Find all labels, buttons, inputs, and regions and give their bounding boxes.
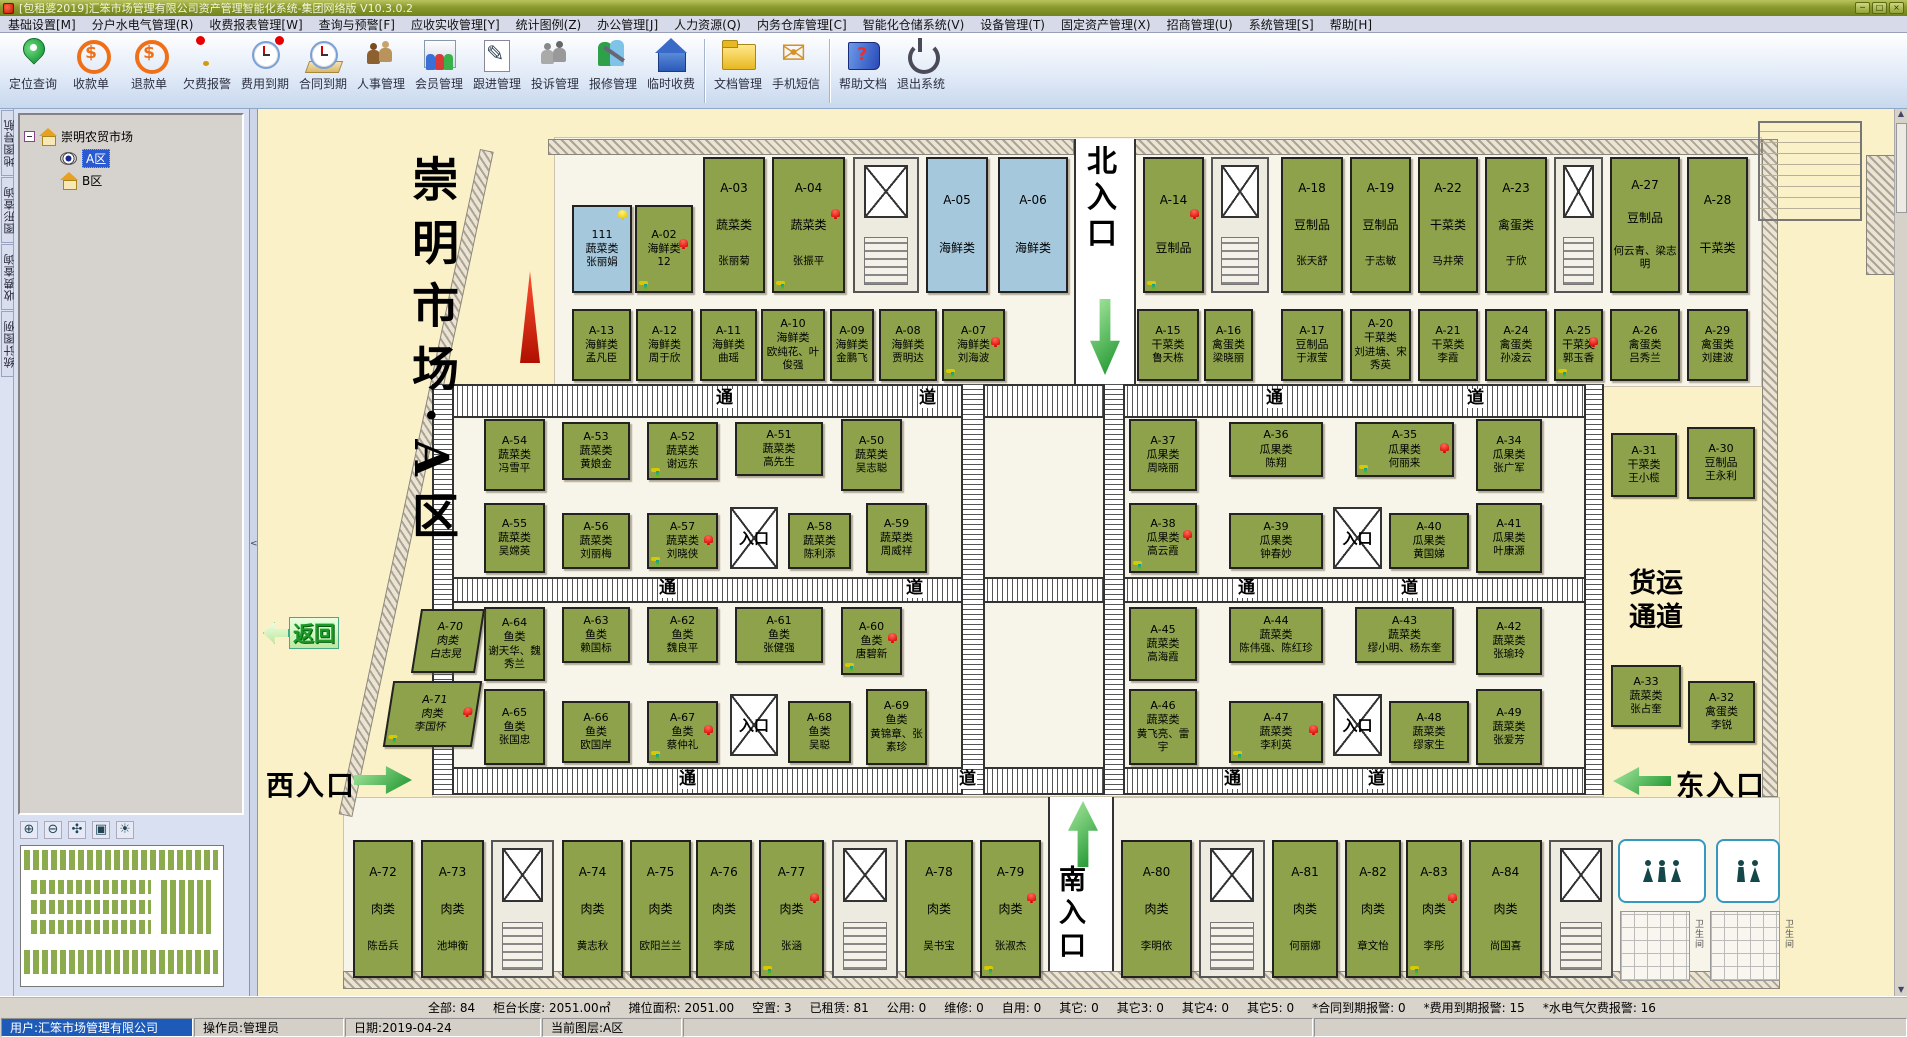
water-tap-icon [639, 281, 650, 290]
menu-item-1[interactable]: 分户水电气管理(R) [84, 16, 202, 33]
inner-entrance-box: 入口 [1333, 694, 1382, 756]
帮助文档-button[interactable]: 帮助文档 [834, 36, 892, 92]
fee-alarm-bell-icon [704, 535, 713, 543]
floor-plan-canvas[interactable]: 崇明市场·A区 北入口 南入口 西入口 东入口 返回 货运 通道 [258, 109, 1907, 996]
stall-A-08[interactable]: A-08海鲜类贾明达 [879, 309, 937, 381]
west-entrance: 西入口 [266, 764, 356, 804]
stall-A-25[interactable]: A-25干菜类郭玉香 [1554, 309, 1603, 381]
status-spare-2 [1314, 1018, 1907, 1037]
stall-A-26[interactable]: A-26禽蛋类吕秀兰 [1610, 309, 1680, 381]
stall-A-35[interactable]: A-35瓜果类何丽来 [1355, 422, 1454, 477]
refund-icon [130, 36, 168, 74]
status-user: 用户:汇笨市场管理有限公司 [1, 1018, 193, 1037]
wall-right [1762, 139, 1778, 797]
water-tap-icon [946, 369, 957, 378]
help-icon [844, 36, 882, 74]
tree-area-a-label[interactable]: A区 [82, 149, 110, 168]
status-item-12: *合同到期报警: 0 [1312, 999, 1406, 1016]
stall-A-22[interactable]: A-22干菜类马井荣 [1418, 157, 1478, 293]
status-item-6: 维修: 0 [944, 999, 984, 1016]
receipt-icon [72, 36, 110, 74]
stall-A-51[interactable]: A-51蔬菜类高先生 [735, 422, 823, 476]
corridor-v-right [1584, 384, 1604, 795]
water-tap-icon [1133, 561, 1144, 570]
status-item-7: 自用: 0 [1002, 999, 1042, 1016]
stall-A-10[interactable]: A-10海鲜类欧纯花、叶俊强 [761, 309, 825, 381]
pan-icon[interactable]: ✣ [68, 821, 86, 839]
water-tap-icon [1558, 369, 1569, 378]
contract-due-icon [304, 36, 342, 74]
fee-alarm-bell-icon [1183, 530, 1192, 538]
stall-A-43[interactable]: A-43蔬菜类缪小明、杨东奎 [1355, 607, 1454, 663]
stall-A-41[interactable]: A-41瓜果类叶康源 [1476, 503, 1542, 573]
status-item-5: 公用: 0 [887, 999, 927, 1016]
stall-A-61[interactable]: A-61鱼类张健强 [735, 607, 823, 663]
menu-item-0[interactable]: 基础设置[M] [0, 16, 84, 33]
fee-alarm-bell-icon [704, 725, 713, 733]
menu-item-13[interactable]: 系统管理[S] [1241, 16, 1322, 33]
fee-alarm-bell-icon [810, 893, 819, 901]
stall-A-47[interactable]: A-47蔬菜类李利英 [1229, 701, 1323, 763]
sidebar-tab-0[interactable]: 地图导航 [1, 110, 14, 176]
status-item-11: 其它5: 0 [1247, 999, 1294, 1016]
menu-item-12[interactable]: 招商管理(U) [1159, 16, 1241, 33]
map-nav-tools: ⊕ ⊖ ✣ ▣ ☀ [20, 821, 134, 839]
water-tap-icon [387, 735, 399, 744]
followup-icon [478, 36, 516, 74]
stall-A-60[interactable]: A-60鱼类唐碧新 [841, 607, 902, 675]
zoom-out-icon[interactable]: ⊖ [44, 821, 62, 839]
corridor-h3 [432, 767, 1604, 795]
south-entrance-corridor: 南入口 [1048, 797, 1114, 971]
fee-alarm-bell-icon [1589, 337, 1598, 345]
menu-item-11[interactable]: 固定资产管理(X) [1053, 16, 1159, 33]
stall-A-38[interactable]: A-38瓜果类高云霞 [1129, 503, 1197, 573]
stall-A-83[interactable]: A-83肉类李彤 [1406, 840, 1462, 978]
stair-elevator-shaft [832, 840, 898, 978]
fee-alarm-bell-icon [888, 633, 897, 641]
water-tap-icon [651, 468, 662, 477]
stall-A-54[interactable]: A-54蔬菜类冯雪平 [484, 419, 545, 491]
报修管理-button[interactable]: 报修管理 [584, 36, 642, 92]
stall-A-53[interactable]: A-53蔬菜类黄娘金 [562, 422, 630, 480]
stall-A-77[interactable]: A-77肉类张涵 [759, 840, 824, 978]
stall-A-34[interactable]: A-34瓜果类张广军 [1476, 419, 1542, 491]
status-item-9: 其它3: 0 [1117, 999, 1164, 1016]
stall-A-76[interactable]: A-76肉类李成 [696, 840, 752, 978]
documents-icon [719, 36, 757, 74]
inner-entrance-box: 入口 [1333, 507, 1382, 569]
fee-alarm-bell-icon [1309, 725, 1318, 733]
east-entrance: 东入口 [1676, 764, 1766, 804]
status-item-8: 其它: 0 [1059, 999, 1099, 1016]
water-tap-icon [1147, 281, 1158, 290]
wall-top-left [548, 139, 1074, 155]
corridor-char: 道 [905, 579, 924, 598]
status-item-2: 摊位面积: 2051.00 [629, 999, 734, 1016]
warn-bell-icon [618, 210, 627, 218]
手机短信-button[interactable]: 手机短信 [767, 36, 825, 92]
status-bar: 全部: 84柜台长度: 2051.00㎡摊位面积: 2051.00空置: 3已租… [0, 996, 1907, 1017]
sidebar-splitter[interactable]: < [250, 109, 258, 996]
stall-A-37[interactable]: A-37瓜果类周晓丽 [1129, 419, 1197, 491]
tree-node-market[interactable]: 崇明农贸市场 [24, 125, 238, 147]
status-item-13: *费用到期报警: 15 [1424, 999, 1525, 1016]
minimize-button[interactable]: ─ [1855, 2, 1870, 14]
收款单-button[interactable]: 收款单 [62, 36, 120, 92]
water-tap-icon [651, 751, 662, 760]
stall-A-13[interactable]: A-13海鲜类孟凡臣 [572, 309, 631, 381]
restroom-female-icon [1618, 839, 1706, 903]
stall-A-55[interactable]: A-55蔬菜类吴嫦英 [484, 503, 545, 573]
map-vertical-scrollbar[interactable]: ▲▼ [1894, 109, 1907, 996]
menu-item-2[interactable]: 收费报表管理[W] [201, 16, 310, 33]
stall-A-18[interactable]: A-18豆制品张天舒 [1281, 157, 1343, 293]
stall-A-64[interactable]: A-64鱼类谢天华、魏秀兰 [484, 607, 545, 681]
east-arrow-icon [1613, 767, 1671, 795]
stall-A-29[interactable]: A-29禽蛋类刘建波 [1687, 309, 1748, 381]
人事管理-button[interactable]: 人事管理 [352, 36, 410, 92]
corridor-v-mid-left [961, 384, 985, 795]
corridor-char: 通 [678, 770, 697, 789]
restroom-label: 卫生间 [1692, 919, 1705, 949]
stall-A-39[interactable]: A-39瓜果类钟春妙 [1229, 513, 1323, 569]
fee-alarm-bell-icon [1448, 893, 1457, 901]
zoom-in-icon[interactable]: ⊕ [20, 821, 38, 839]
stall-A-12[interactable]: A-12海鲜类周于欣 [636, 309, 693, 381]
menu-item-5[interactable]: 统计图例(Z) [508, 16, 590, 33]
stall-A-27[interactable]: A-27豆制品何云青、梁志明 [1610, 157, 1680, 293]
back-button[interactable]: 返回 [263, 617, 339, 649]
corridor-h1 [432, 384, 1604, 418]
complaints-icon [536, 36, 574, 74]
stair-elevator-shaft [1211, 157, 1269, 293]
stall-A-82[interactable]: A-82肉类章文怡 [1345, 840, 1401, 978]
stall-A-75[interactable]: A-75肉类欧阳兰兰 [630, 840, 691, 978]
stall-A-73[interactable]: A-73肉类池坤衡 [421, 840, 484, 978]
stall-A-48[interactable]: A-48蔬菜类缪家生 [1389, 701, 1469, 763]
repair-icon [594, 36, 632, 74]
exit-icon [902, 36, 940, 74]
文档管理-button[interactable]: 文档管理 [709, 36, 767, 92]
corridor-char: 道 [1367, 770, 1386, 789]
wall-top-right [1134, 139, 1762, 155]
app-icon [3, 3, 14, 14]
会员管理-button[interactable]: 会员管理 [410, 36, 468, 92]
toolbar-separator [704, 39, 705, 103]
tree-area-b-label[interactable]: B区 [82, 172, 102, 189]
close-button[interactable]: × [1889, 2, 1904, 14]
stall-A-42[interactable]: A-42蔬菜类张瑜玲 [1476, 607, 1542, 675]
stall-A-19[interactable]: A-19豆制品于志敏 [1350, 157, 1411, 293]
stall-A-67[interactable]: A-67鱼类蔡仲礼 [647, 701, 718, 763]
corridor-char: 道 [958, 770, 977, 789]
stall-A-07[interactable]: A-07海鲜类刘海波 [942, 309, 1005, 381]
corridor-char: 通 [658, 579, 677, 598]
corridor-char: 通 [1237, 579, 1256, 598]
fee-alarm-bell-icon [679, 239, 688, 247]
fit-view-icon[interactable]: ▣ [92, 821, 110, 839]
status-item-10: 其它4: 0 [1182, 999, 1229, 1016]
status-date: 日期:2019-04-24 [345, 1018, 541, 1037]
locate-icon [14, 36, 52, 74]
跟进管理-button[interactable]: 跟进管理 [468, 36, 526, 92]
back-button-label[interactable]: 返回 [289, 617, 339, 649]
water-tap-icon [776, 281, 787, 290]
stall-A-36[interactable]: A-36瓜果类陈翔 [1229, 422, 1323, 477]
north-entrance-label: 北入口 [1076, 145, 1120, 253]
menu-item-10[interactable]: 设备管理(T) [972, 16, 1053, 33]
tree-expander-icon[interactable] [24, 131, 35, 142]
east-entrance-label: 东入口 [1676, 769, 1766, 802]
stall-A-32[interactable]: A-32禽蛋类李锐 [1688, 681, 1755, 743]
stall-A-17[interactable]: A-17豆制品于淑莹 [1281, 309, 1343, 381]
fee-alarm-bell-icon [831, 209, 840, 217]
corridor-char: 道 [1466, 389, 1485, 408]
stall-A-06[interactable]: A-06海鲜类 [998, 157, 1068, 293]
sidebar-tab-strip: 地图导航图形查询收费查询统计图例 [0, 109, 14, 996]
hr-icon [362, 36, 400, 74]
outer-structure [1758, 121, 1862, 221]
stall-A-24[interactable]: A-24禽蛋类孙凌云 [1485, 309, 1547, 381]
sms-icon [777, 36, 815, 74]
members-icon [420, 36, 458, 74]
menu-item-9[interactable]: 智能化仓储系统(V) [855, 16, 973, 33]
arrears-alarm-icon [188, 36, 226, 74]
inner-entrance-box: 入口 [730, 507, 778, 569]
stall-A-81[interactable]: A-81肉类何丽娜 [1272, 840, 1338, 978]
tree-root-label[interactable]: 崇明农贸市场 [61, 128, 133, 145]
stall-A-02[interactable]: A-02海鲜类12 [635, 205, 693, 293]
stall-A-70[interactable]: A-70肉类白志晃 [411, 609, 485, 673]
stall-A-63[interactable]: A-63鱼类赖国标 [562, 607, 630, 663]
stall-A-33[interactable]: A-33蔬菜类张占奎 [1611, 665, 1681, 727]
menu-bar: 基础设置[M]分户水电气管理(R)收费报表管理[W]查询与预警[F]应收实收管理… [0, 16, 1907, 33]
west-entrance-label: 西入口 [266, 769, 356, 802]
water-tap-icon [1410, 966, 1421, 975]
status-operator: 操作员:管理员 [194, 1018, 344, 1037]
stall-A-15[interactable]: A-15干菜类鲁天栋 [1137, 309, 1199, 381]
stall-A-78[interactable]: A-78肉类吴书宝 [905, 840, 973, 978]
corridor-char: 通 [1223, 770, 1242, 789]
sidebar-tab-1[interactable]: 图形查询 [1, 177, 14, 243]
stall-A-72[interactable]: A-72肉类陈岳兵 [353, 840, 413, 978]
south-arrow-icon [1068, 801, 1098, 867]
费用到期-button[interactable]: 费用到期 [236, 36, 294, 92]
stall-A-59[interactable]: A-59蔬菜类周威祥 [866, 503, 927, 573]
west-arrow-icon [354, 766, 412, 794]
bottom-status-bar: 用户:汇笨市场管理有限公司 操作员:管理员 日期:2019-04-24 当前图层… [0, 1017, 1907, 1038]
stall-A-65[interactable]: A-65鱼类张国忠 [484, 689, 545, 765]
maximize-button[interactable]: □ [1872, 2, 1887, 14]
stall-A-58[interactable]: A-58蔬菜类陈利添 [788, 513, 851, 569]
stair-elevator-shaft [853, 157, 919, 293]
合同到期-button[interactable]: 合同到期 [294, 36, 352, 92]
menu-item-8[interactable]: 内务仓库管理[C] [749, 16, 855, 33]
stall-A-45[interactable]: A-45蔬菜类高海霞 [1129, 607, 1197, 681]
stall-111[interactable]: 111蔬菜类张丽娟 [572, 205, 632, 293]
water-tap-icon [763, 966, 774, 975]
corridor-char: 通 [1265, 389, 1284, 408]
stall-A-03[interactable]: A-03蔬菜类张丽菊 [703, 157, 765, 293]
fee-alarm-bell-icon [991, 337, 1000, 345]
toolbar-separator [829, 39, 830, 103]
fee-alarm-bell-icon [1440, 443, 1449, 451]
menu-item-7[interactable]: 人力资源(Q) [666, 16, 749, 33]
temp-fee-icon [652, 36, 690, 74]
stair-elevator-shaft [1554, 157, 1603, 293]
sidebar-tab-2[interactable]: 收费查询 [1, 244, 14, 310]
back-arrow-icon [263, 622, 289, 644]
fee-alarm-bell-icon [1190, 209, 1199, 217]
stall-A-80[interactable]: A-80肉类李明依 [1121, 840, 1192, 978]
area-b-home-icon [60, 173, 77, 188]
stall-A-05[interactable]: A-05海鲜类 [926, 157, 988, 293]
corridor-v-mid-right [1103, 384, 1125, 795]
restrooms: 卫生间 卫生间 [1618, 835, 1782, 987]
corridor-char: 道 [918, 389, 937, 408]
stall-A-31[interactable]: A-31干菜类王小榄 [1611, 433, 1677, 497]
stall-A-46[interactable]: A-46蔬菜类黄飞亮、雷宇 [1129, 689, 1197, 765]
stall-A-56[interactable]: A-56蔬菜类刘丽梅 [562, 513, 630, 569]
stall-A-20[interactable]: A-20干菜类刘进塘、宋秀英 [1350, 309, 1411, 381]
status-layer: 当前图层:A区 [542, 1018, 682, 1037]
退款单-button[interactable]: 退款单 [120, 36, 178, 92]
alert-flag-marker [520, 271, 540, 363]
restroom-fixtures [1620, 911, 1690, 981]
stall-A-57[interactable]: A-57蔬菜类刘晓侠 [647, 513, 718, 569]
water-tap-icon [1233, 751, 1244, 760]
stall-A-28[interactable]: A-28干菜类 [1687, 157, 1748, 293]
stall-A-62[interactable]: A-62鱼类魏良平 [647, 607, 718, 663]
south-entrance-label: 南入口 [1050, 865, 1089, 964]
fee-due-icon [246, 36, 284, 74]
freight-corridor-label: 货运 通道 [1618, 567, 1694, 635]
stair-elevator-shaft [1199, 840, 1265, 978]
sidebar-tab-3[interactable]: 统计图例 [1, 311, 14, 377]
stall-A-11[interactable]: A-11海鲜类曲瑶 [700, 309, 757, 381]
status-item-14: *水电气欠费报警: 16 [1543, 999, 1656, 1016]
corridor-char: 道 [1400, 579, 1419, 598]
tree-node-area-a[interactable]: A区 [24, 147, 238, 169]
tree-node-area-b[interactable]: B区 [24, 169, 238, 191]
stair-elevator-shaft [1549, 840, 1613, 978]
stall-A-16[interactable]: A-16禽蛋类梁晓丽 [1204, 309, 1253, 381]
stall-A-21[interactable]: A-21干菜类李霞 [1418, 309, 1478, 381]
restroom-label-2: 卫生间 [1782, 919, 1795, 949]
退出系统-button[interactable]: 退出系统 [892, 36, 950, 92]
inner-entrance-box: 入口 [730, 694, 778, 756]
menu-item-14[interactable]: 帮助[H] [1322, 16, 1380, 33]
stall-A-49[interactable]: A-49蔬菜类张爱芳 [1476, 689, 1542, 765]
stall-A-66[interactable]: A-66鱼类欧国岸 [562, 701, 630, 763]
lightbulb-icon[interactable]: ☀ [116, 821, 134, 839]
map-area-title: 崇明市场·A区 [396, 155, 465, 555]
stall-A-52[interactable]: A-52蔬菜类谢远东 [647, 422, 718, 480]
status-item-4: 已租赁: 81 [810, 999, 869, 1016]
stall-A-09[interactable]: A-09海鲜类金鹏飞 [830, 309, 874, 381]
stall-A-79[interactable]: A-79肉类张淑杰 [980, 840, 1041, 978]
status-item-1: 柜台长度: 2051.00㎡ [493, 999, 610, 1016]
corridor-char: 通 [715, 389, 734, 408]
status-spare-1 [683, 1018, 1313, 1037]
overview-minimap[interactable] [20, 845, 224, 987]
market-home-icon [39, 129, 56, 144]
app-window: [包租婆2019]汇笨市场管理有限公司资产管理智能化系统-集团网络版 V10.3… [0, 0, 1907, 1038]
toolbar: 定位查询收款单退款单欠费报警费用到期合同到期人事管理会员管理跟进管理投诉管理报修… [0, 33, 1907, 109]
water-tap-icon [1359, 465, 1370, 474]
stall-A-44[interactable]: A-44蔬菜类陈伟强、陈红珍 [1229, 607, 1323, 663]
stall-A-04[interactable]: A-04蔬菜类张振平 [772, 157, 845, 293]
stall-A-84[interactable]: A-84肉类尚国喜 [1469, 840, 1542, 978]
market-tree: 崇明农贸市场 A区 B区 [18, 113, 244, 815]
投诉管理-button[interactable]: 投诉管理 [526, 36, 584, 92]
menu-item-6[interactable]: 办公管理[J] [589, 16, 666, 33]
stall-A-74[interactable]: A-74肉类黄志秋 [562, 840, 623, 978]
water-tap-icon [651, 557, 662, 566]
欠费报警-button[interactable]: 欠费报警 [178, 36, 236, 92]
corridor-h2 [432, 577, 1604, 603]
status-item-0: 全部: 84 [428, 999, 475, 1016]
stall-A-40[interactable]: A-40瓜果类黄国娣 [1389, 513, 1469, 569]
stall-A-71[interactable]: A-71肉类李国怀 [383, 681, 482, 747]
eye-icon [60, 152, 77, 165]
fee-alarm-bell-icon [1027, 893, 1036, 901]
restroom-male-icon [1716, 839, 1780, 903]
fee-alarm-bell-icon [463, 707, 473, 715]
status-item-3: 空置: 3 [752, 999, 792, 1016]
menu-item-4[interactable]: 应收实收管理[Y] [403, 16, 508, 33]
stall-A-30[interactable]: A-30豆制品王永利 [1687, 427, 1755, 499]
stall-A-14[interactable]: A-14豆制品 [1143, 157, 1204, 293]
临时收费-button[interactable]: 临时收费 [642, 36, 700, 92]
stall-A-69[interactable]: A-69鱼类黄锦章、张素珍 [866, 689, 927, 765]
water-tap-icon [845, 663, 856, 672]
restroom-fixtures-2 [1710, 911, 1780, 981]
stall-A-68[interactable]: A-68鱼类吴聪 [788, 701, 851, 763]
title-bar: [包租婆2019]汇笨市场管理有限公司资产管理智能化系统-集团网络版 V10.3… [0, 0, 1907, 16]
stair-elevator-shaft [491, 840, 554, 978]
定位查询-button[interactable]: 定位查询 [4, 36, 62, 92]
menu-item-3[interactable]: 查询与预警[F] [311, 16, 403, 33]
water-tap-icon [984, 966, 995, 975]
stall-A-50[interactable]: A-50蔬菜类吴志聪 [841, 419, 902, 491]
sidebar-panel: 崇明农贸市场 A区 B区 ⊕ ⊖ ✣ ▣ ☀ [14, 109, 250, 996]
window-title: [包租婆2019]汇笨市场管理有限公司资产管理智能化系统-集团网络版 V10.3… [19, 0, 413, 16]
stall-A-23[interactable]: A-23禽蛋类于欣 [1485, 157, 1547, 293]
